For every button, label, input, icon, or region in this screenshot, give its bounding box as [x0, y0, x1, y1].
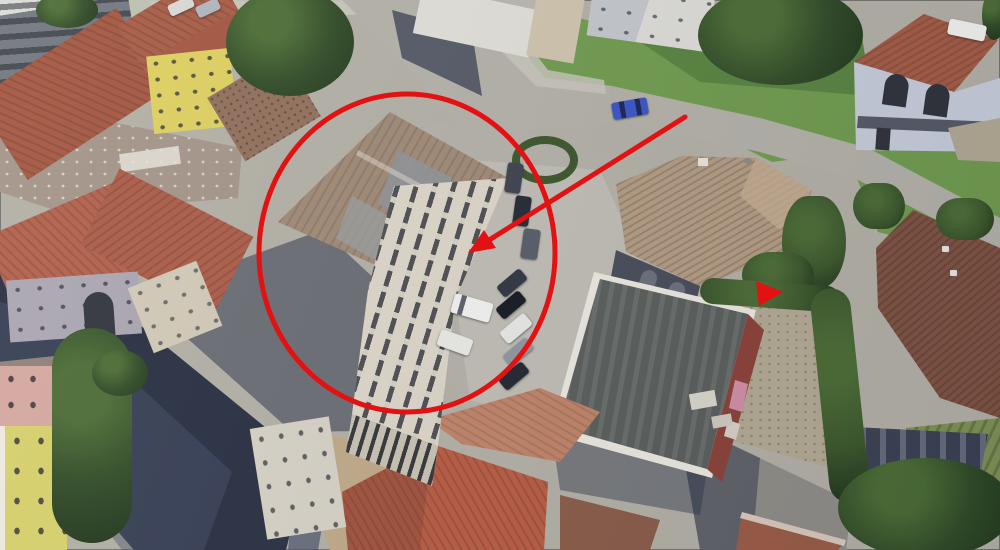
white-facade-bottom-center [250, 416, 347, 539]
villa-loggia-arch-2 [923, 82, 951, 117]
aerial-photo [0, 0, 1000, 550]
tan-house-dormer [698, 158, 708, 166]
bush-right-1 [853, 183, 905, 229]
manhole [744, 158, 752, 164]
tree-small-left [92, 350, 148, 396]
chimney-right-2 [950, 270, 957, 276]
villa-door [875, 128, 891, 151]
chimney-right-1 [942, 246, 949, 252]
bush-right-2 [936, 198, 994, 240]
villa-loggia-arch-1 [882, 72, 910, 107]
